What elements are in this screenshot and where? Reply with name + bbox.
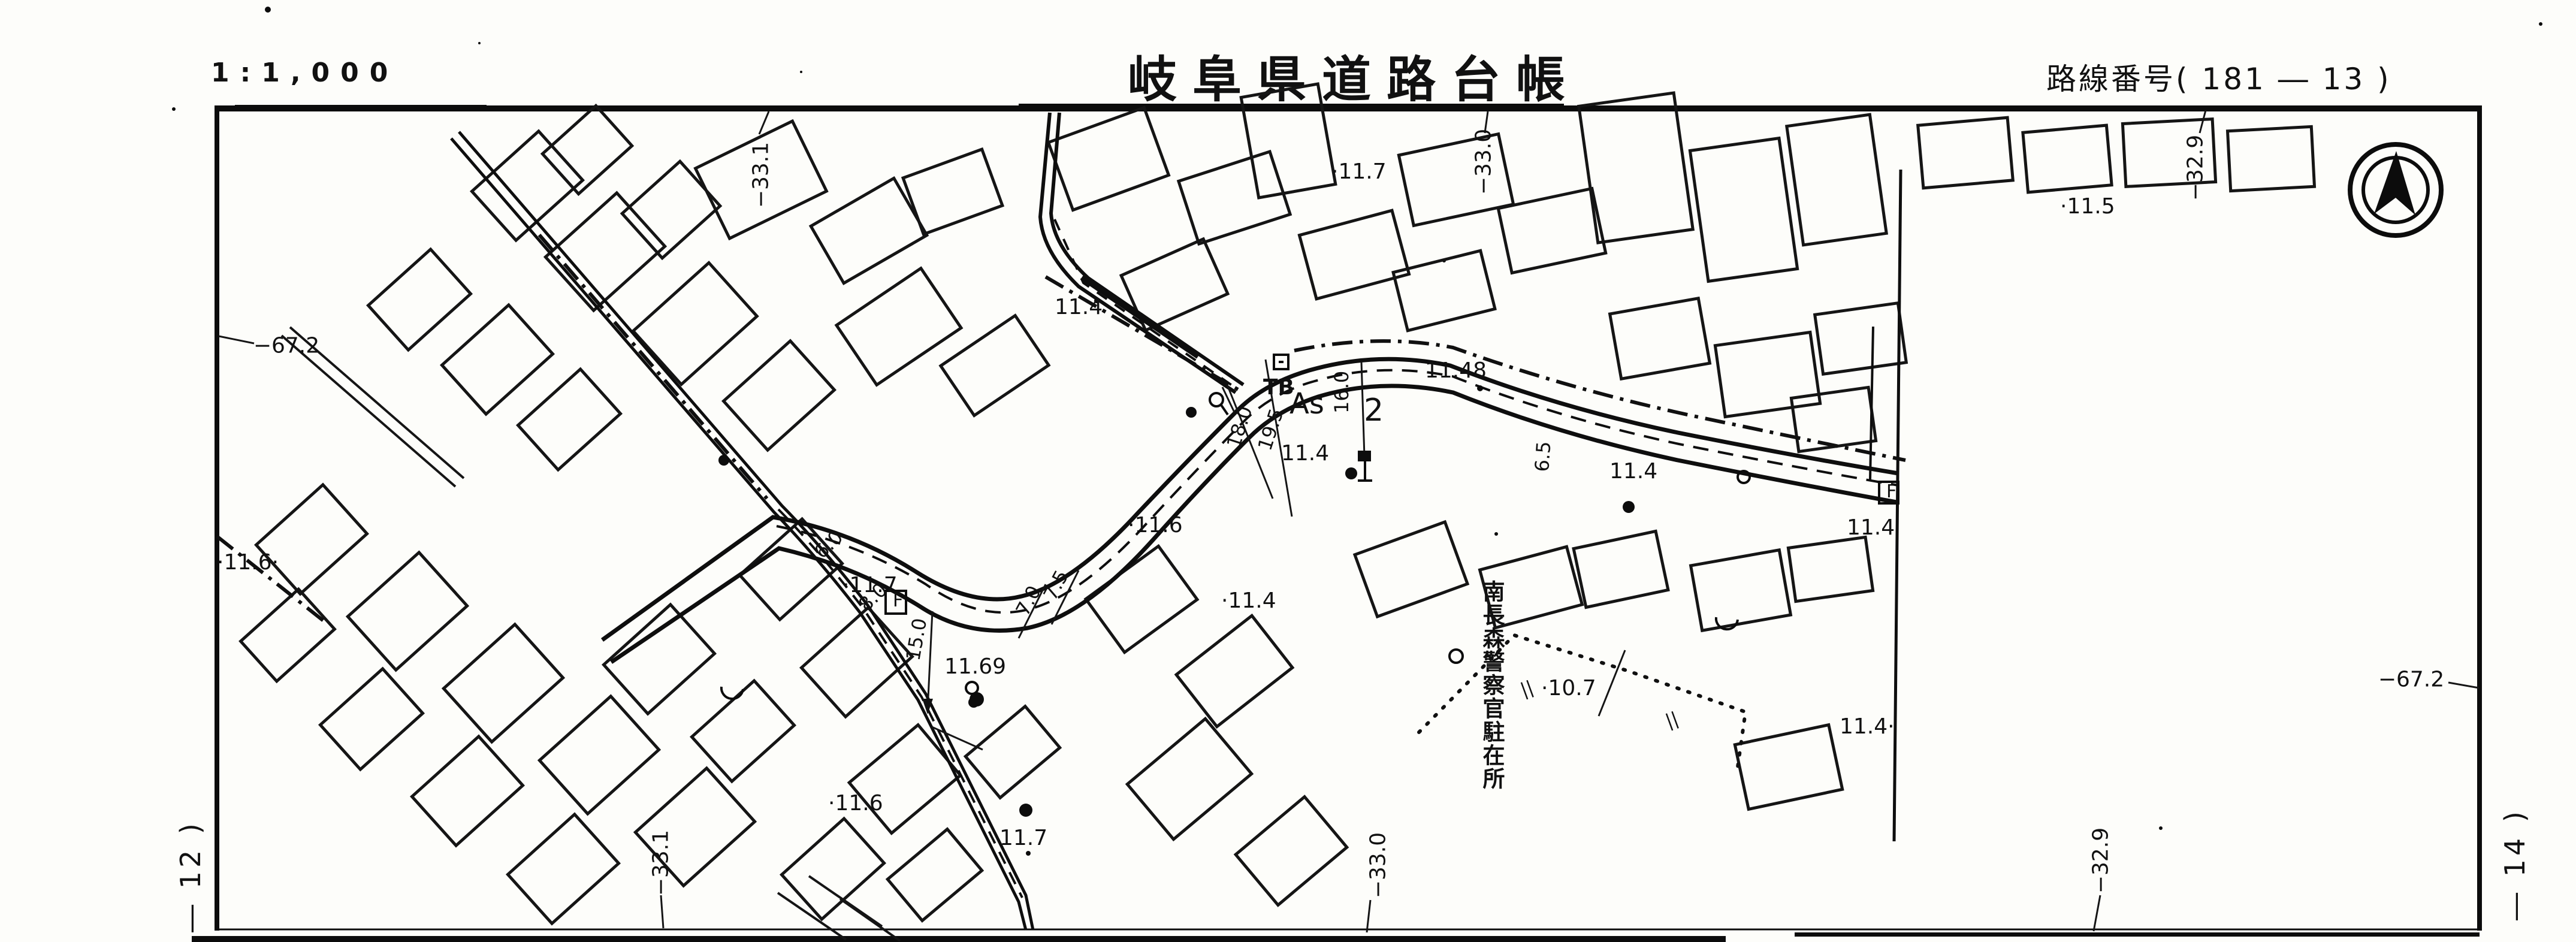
building-outline bbox=[508, 814, 619, 923]
spot-height-label: ·11.6 bbox=[1128, 513, 1183, 538]
grid-ref-label-bottom: −33.1 bbox=[649, 830, 674, 896]
building-outline bbox=[348, 552, 467, 670]
width-measurement-label: 7.5 bbox=[1039, 566, 1073, 604]
building-outline bbox=[1241, 84, 1336, 198]
building-outline bbox=[1127, 718, 1251, 839]
south-street bbox=[451, 132, 1033, 930]
building-outline bbox=[724, 341, 835, 450]
spot-height-label: ·11.6· bbox=[217, 550, 279, 575]
north-arrow-icon bbox=[2350, 144, 2441, 236]
signal-icon bbox=[1358, 452, 1372, 481]
adjacent-sheet-ref-left: ― 12 ) bbox=[174, 820, 207, 932]
building-outline bbox=[1498, 189, 1605, 273]
spot-height-label: 11.48 bbox=[1425, 358, 1487, 383]
spot-height-label: 11.4 bbox=[1055, 295, 1103, 319]
building-outline bbox=[1691, 550, 1791, 630]
police-box-label: 南長森警察官駐在所 bbox=[1475, 580, 1508, 790]
building-outline bbox=[369, 249, 471, 350]
grid-ref-label-right: −67.2 bbox=[2378, 668, 2444, 692]
building-outline bbox=[256, 485, 367, 594]
paddy-field-mark: || bbox=[1663, 708, 1681, 732]
width-measurement-label: 6.5 bbox=[1530, 440, 1555, 472]
hydrant-label: F bbox=[1886, 481, 1896, 502]
map-frame bbox=[215, 106, 2482, 931]
spot-height-label: 11.69 bbox=[944, 654, 1006, 679]
dotted-field-boundary bbox=[1419, 635, 1745, 771]
building-outline bbox=[2228, 126, 2315, 191]
building-outline bbox=[1399, 134, 1513, 226]
building-outline bbox=[903, 149, 1002, 234]
building-outline bbox=[692, 681, 795, 781]
block-number-label: 2 bbox=[1364, 393, 1384, 428]
building-outline bbox=[443, 624, 563, 742]
spot-height-label: ·11.5 bbox=[2060, 194, 2115, 219]
building-outline bbox=[539, 696, 659, 814]
building-outline bbox=[2023, 125, 2112, 192]
building-outline bbox=[241, 589, 335, 681]
building-outline bbox=[1049, 108, 1169, 210]
building-outline bbox=[1179, 152, 1290, 244]
spot-height-label: 11.4 bbox=[1847, 515, 1895, 540]
right-vertical-street bbox=[1870, 170, 1901, 841]
building-outline bbox=[622, 161, 720, 258]
building-outline bbox=[1918, 117, 2013, 188]
benchmark-label: TB bbox=[1263, 375, 1294, 400]
spot-height-label: 11.4 bbox=[1609, 459, 1657, 484]
building-outline bbox=[442, 305, 553, 414]
building-outline bbox=[1791, 387, 1876, 451]
hydrant-label: F bbox=[893, 590, 903, 611]
building-outline bbox=[782, 819, 884, 919]
spot-height-label: 11.4· bbox=[1840, 714, 1895, 739]
grid-ref-label-top: −33.0 bbox=[1472, 129, 1496, 195]
grid-ref-label-bottom: −32.9 bbox=[2089, 828, 2113, 893]
spot-height-label: ·11.4 bbox=[1221, 588, 1276, 613]
spot-height-label: ·10.7 bbox=[1541, 676, 1596, 701]
grid-ref-label-top: −32.9 bbox=[2184, 135, 2208, 201]
grid-ref-label-top: −33.1 bbox=[749, 142, 774, 208]
building-outline bbox=[1355, 522, 1467, 617]
minor-lanes bbox=[282, 327, 900, 941]
building-outline bbox=[965, 707, 1059, 798]
building-outline bbox=[1610, 298, 1710, 379]
spot-height-label: 11.4 bbox=[1281, 441, 1329, 466]
building-outline bbox=[1815, 303, 1907, 375]
grid-leader-lines bbox=[219, 110, 2479, 932]
road-ledger-sheet: 1:1,000 岐阜県道路台帳 路線番号( 181 ― 13 ) bbox=[0, 0, 2576, 942]
paddy-field-mark: || bbox=[1518, 677, 1536, 701]
benchmark-square-icon bbox=[1274, 355, 1288, 369]
building-outline bbox=[1236, 797, 1347, 905]
spot-height-label: 11.7 bbox=[999, 826, 1047, 850]
building-outline bbox=[472, 131, 583, 240]
building-outline bbox=[1715, 333, 1820, 417]
building-outline bbox=[1735, 725, 1842, 810]
spot-height-label: ·11.6 bbox=[828, 791, 883, 816]
building-outline bbox=[1788, 537, 1873, 601]
northwest-street bbox=[1040, 113, 1243, 393]
building-outline bbox=[321, 669, 423, 769]
building-outline bbox=[1393, 250, 1495, 330]
width-measurement-label: 7.0 bbox=[1011, 582, 1046, 620]
grid-ref-label-left: −67.2 bbox=[253, 334, 319, 358]
building-outline bbox=[604, 605, 715, 714]
building-outline bbox=[1176, 615, 1292, 726]
building-outline bbox=[1574, 532, 1668, 608]
building-outline bbox=[412, 736, 523, 846]
building-outline bbox=[1787, 114, 1886, 245]
building-outline bbox=[1690, 138, 1797, 282]
grid-ref-label-bottom: −33.0 bbox=[1366, 832, 1391, 898]
building-outline bbox=[1579, 93, 1693, 243]
building-outlines bbox=[241, 84, 2315, 923]
width-measurement-label: 16.0 bbox=[1330, 371, 1353, 413]
building-outline bbox=[518, 369, 621, 470]
building-outline bbox=[887, 829, 982, 921]
building-outline bbox=[1086, 546, 1197, 652]
width-measurement-label: 15.0 bbox=[901, 617, 931, 663]
spot-height-label: ·11.7 bbox=[1331, 159, 1387, 184]
building-outline bbox=[802, 608, 913, 717]
adjacent-sheet-ref-right: ― 14 ) bbox=[2499, 808, 2531, 920]
pavement-type-label: As bbox=[1289, 387, 1324, 421]
building-outline bbox=[1300, 210, 1409, 299]
